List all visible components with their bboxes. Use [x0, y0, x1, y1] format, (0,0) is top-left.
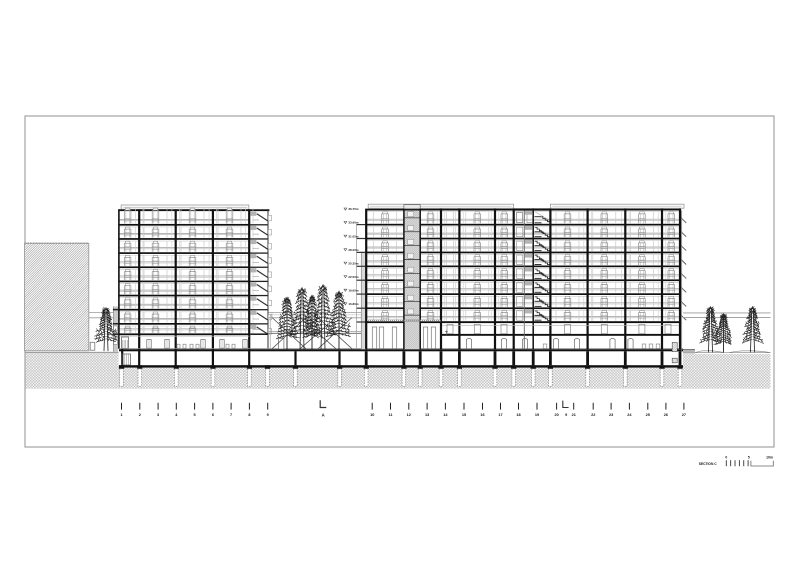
svg-text:0: 0	[725, 455, 727, 459]
svg-text:9: 9	[267, 413, 269, 417]
svg-text:10: 10	[370, 413, 374, 417]
svg-text:16.80m: 16.80m	[348, 302, 359, 306]
svg-text:9: 9	[565, 413, 567, 417]
svg-text:13: 13	[425, 413, 429, 417]
svg-text:11: 11	[388, 413, 392, 417]
svg-text:SECTION C: SECTION C	[699, 462, 717, 466]
svg-text:25: 25	[646, 413, 650, 417]
svg-text:8: 8	[248, 413, 250, 417]
svg-text:25.35m: 25.35m	[348, 261, 359, 265]
svg-text:A: A	[322, 413, 325, 418]
svg-text:19: 19	[535, 413, 539, 417]
svg-text:7: 7	[230, 413, 232, 417]
svg-text:17: 17	[498, 413, 502, 417]
svg-text:5: 5	[748, 455, 750, 459]
svg-text:15: 15	[462, 413, 466, 417]
svg-text:5: 5	[194, 413, 196, 417]
svg-text:1: 1	[120, 413, 122, 417]
svg-text:3: 3	[157, 413, 159, 417]
svg-text:6: 6	[212, 413, 214, 417]
svg-text:36.75m: 36.75m	[348, 207, 359, 211]
svg-text:28.20m: 28.20m	[348, 248, 359, 252]
svg-text:22: 22	[591, 413, 595, 417]
svg-text:2: 2	[139, 413, 141, 417]
svg-text:10m: 10m	[766, 455, 773, 459]
svg-text:18: 18	[516, 413, 520, 417]
svg-text:33.90m: 33.90m	[348, 221, 359, 225]
svg-text:19.65m: 19.65m	[348, 288, 359, 292]
svg-text:22.50m: 22.50m	[348, 275, 359, 279]
svg-text:16: 16	[480, 413, 484, 417]
svg-text:31.05m: 31.05m	[348, 234, 359, 238]
svg-text:21: 21	[572, 413, 576, 417]
svg-text:20: 20	[554, 413, 558, 417]
svg-text:23: 23	[609, 413, 613, 417]
svg-text:26: 26	[664, 413, 668, 417]
svg-text:12: 12	[407, 413, 411, 417]
svg-text:27: 27	[682, 413, 686, 417]
